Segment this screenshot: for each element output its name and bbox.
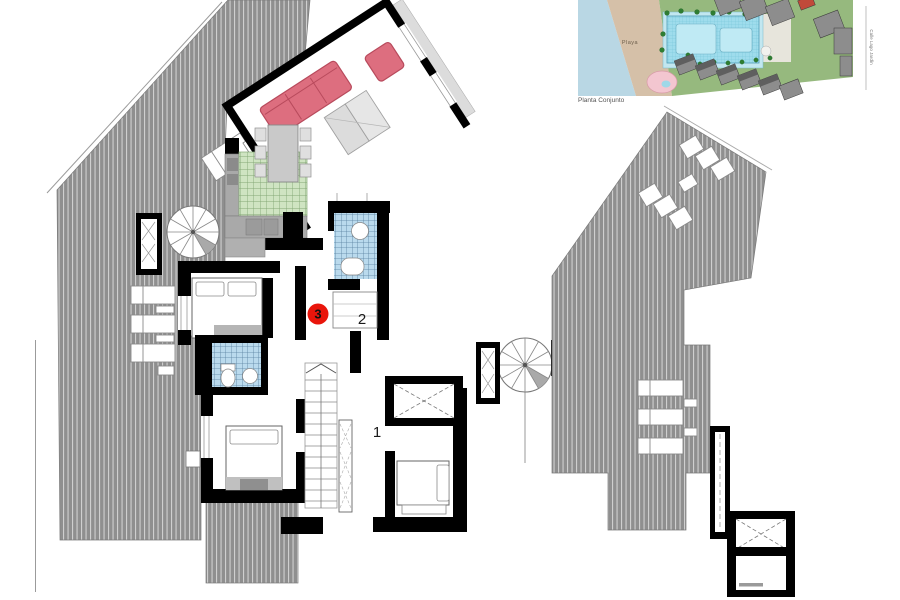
footboard-center	[240, 479, 268, 490]
dining-set	[255, 125, 311, 182]
wall	[377, 201, 389, 340]
spiral-staircase	[167, 206, 219, 258]
storage-room	[727, 547, 795, 597]
bed	[226, 426, 282, 490]
chair	[255, 164, 266, 177]
sink	[352, 223, 369, 240]
sun-lounger	[131, 344, 175, 362]
chair	[300, 164, 311, 177]
nightstand	[186, 451, 200, 467]
sink	[243, 369, 258, 384]
side-table	[684, 399, 697, 407]
sun-lounger	[638, 438, 683, 454]
chair	[255, 146, 266, 159]
side-table	[684, 428, 697, 436]
pillow	[228, 282, 256, 296]
zone-label-1: 1	[373, 424, 381, 441]
sun-lounger	[638, 409, 683, 425]
pillow	[196, 282, 224, 296]
dining-table	[268, 125, 298, 182]
wall	[283, 212, 303, 238]
sun-lounger	[638, 380, 683, 396]
inset-caption: Planta Conjunto	[578, 97, 625, 104]
wall	[178, 261, 280, 273]
wall	[281, 517, 323, 534]
planter-box	[136, 213, 162, 275]
wall	[201, 489, 313, 503]
bathroom-1	[195, 335, 268, 395]
wall	[265, 238, 323, 250]
side-table	[158, 366, 174, 375]
appliance	[264, 219, 278, 235]
wall	[350, 331, 361, 373]
wall	[328, 279, 360, 290]
window-gap	[178, 296, 191, 330]
side-table	[156, 306, 174, 313]
appliance	[246, 219, 262, 235]
appliance	[227, 158, 238, 171]
street-label: Calle Lago Jardín	[869, 29, 874, 65]
stair-rail	[339, 420, 352, 512]
zone-label-2: 2	[358, 311, 366, 328]
chair	[255, 128, 266, 141]
kids-pool	[647, 71, 677, 93]
side-table	[156, 335, 174, 342]
sun-lounger	[131, 315, 175, 333]
kitchen-counter	[225, 238, 265, 257]
floor-plan-canvas: 3 2 1	[0, 0, 900, 600]
beach-label: Playa	[622, 40, 639, 46]
chair	[300, 146, 311, 159]
terrace-deck-lower	[206, 497, 298, 583]
appliance	[227, 174, 238, 185]
planter-box	[476, 342, 500, 404]
toilet	[341, 258, 364, 275]
chair	[300, 128, 311, 141]
bed	[192, 278, 262, 338]
wall	[262, 278, 273, 338]
toilet	[221, 364, 235, 387]
shelf	[739, 583, 763, 587]
badge-number: 3	[314, 307, 321, 322]
bedroom-3	[385, 451, 449, 521]
sun-lounger	[131, 286, 175, 304]
pillow	[437, 465, 449, 501]
unit-number-badge: 3	[308, 304, 329, 325]
fountain	[761, 46, 771, 56]
wall	[385, 451, 395, 521]
sun-loungers-left	[131, 286, 175, 375]
elevator	[385, 376, 463, 426]
floorplan-page: 3 2 1	[0, 0, 900, 600]
bench	[402, 505, 446, 514]
spiral-staircase	[498, 338, 552, 392]
pillow	[230, 430, 278, 444]
wall	[295, 266, 306, 340]
window-gap	[201, 416, 213, 458]
closet	[333, 292, 377, 328]
